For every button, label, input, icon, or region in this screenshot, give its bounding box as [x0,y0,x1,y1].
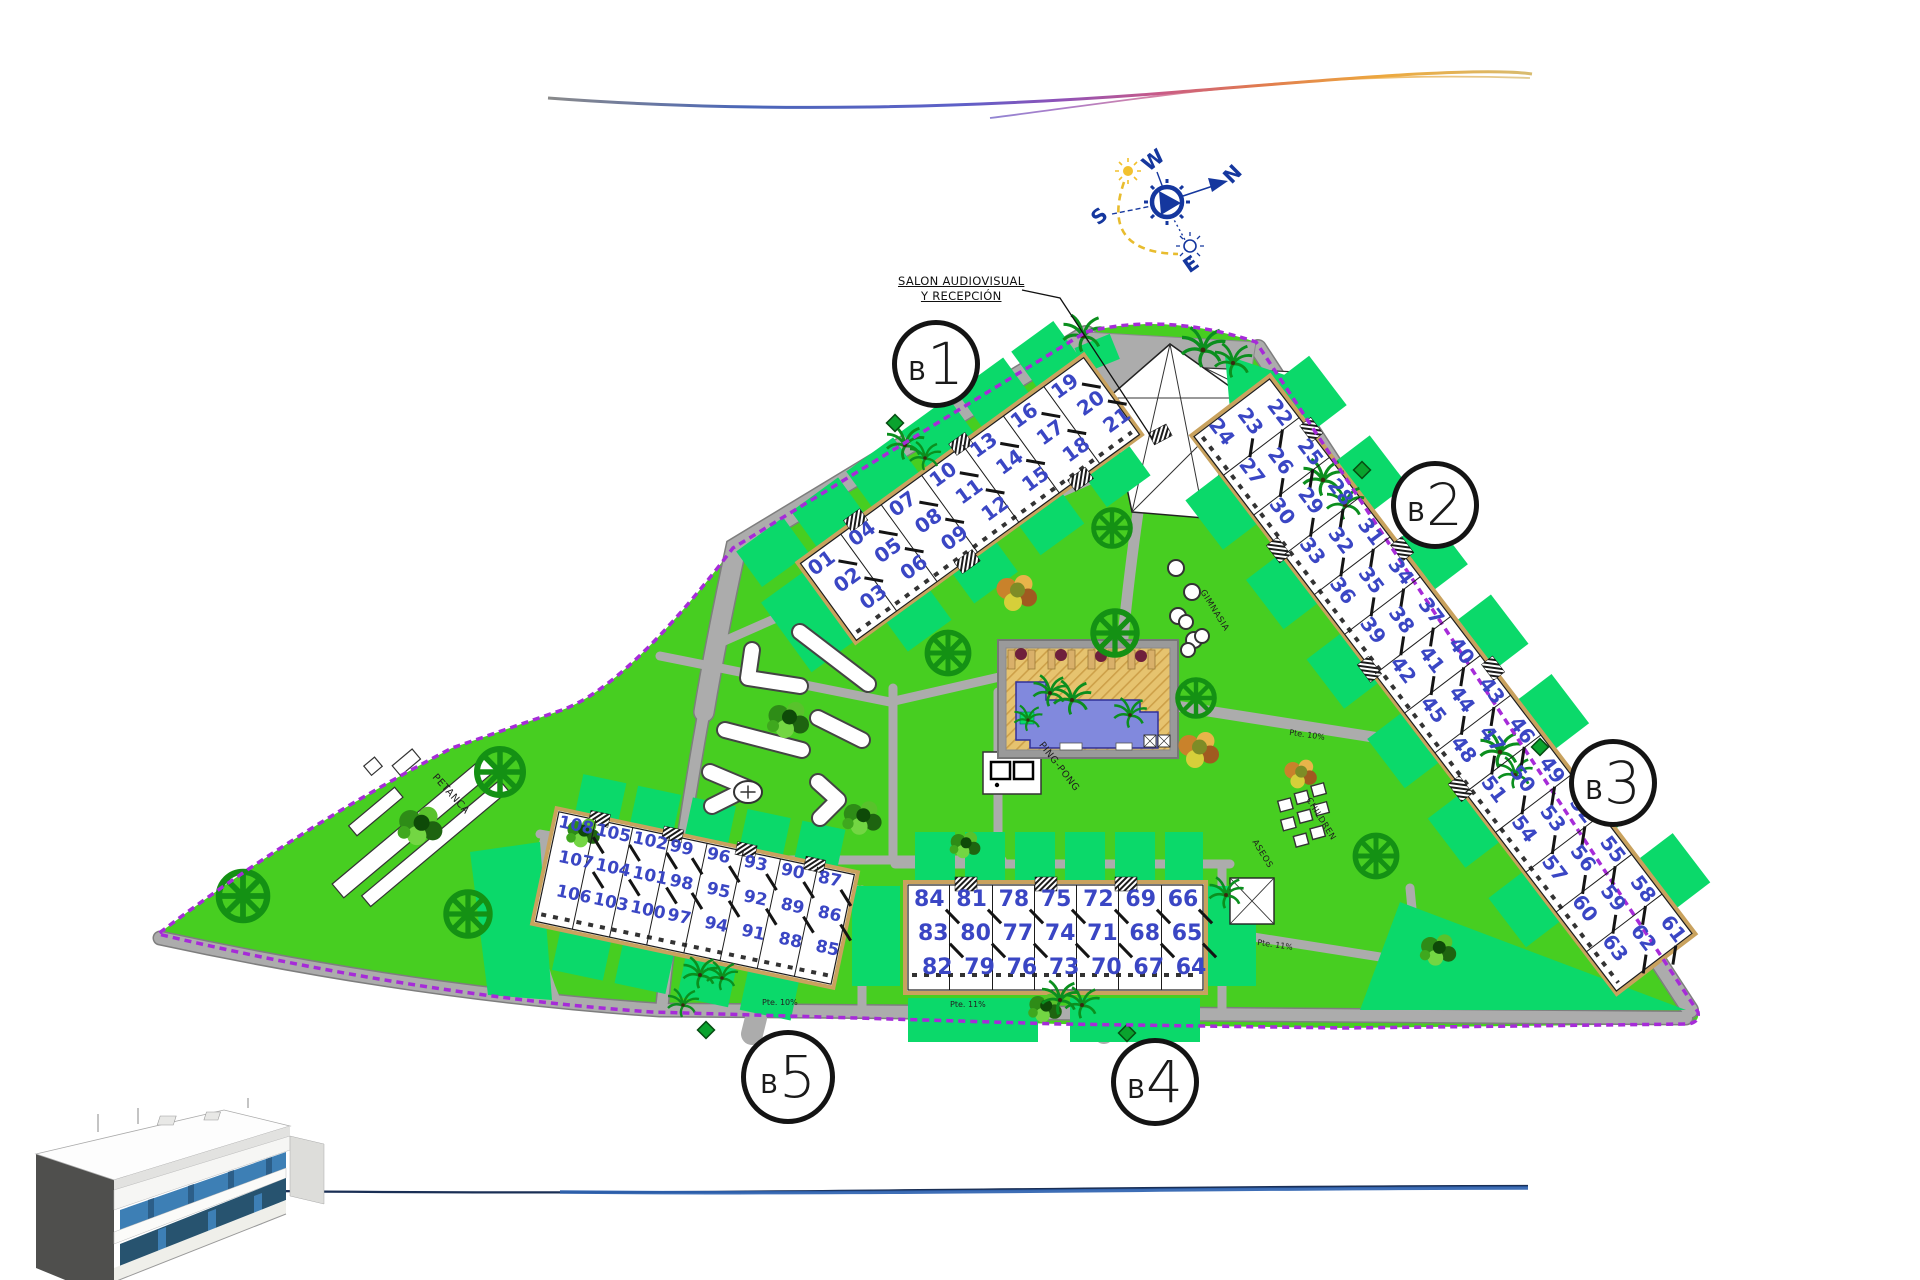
slope-label: Pte. 10% [762,998,798,1007]
block-prefix: B [1127,1075,1145,1105]
block-number: 1 [927,330,964,398]
block-label-b3: B3 [1569,739,1657,827]
top-decorative-line [548,72,1532,118]
slope-label: Pte. 11% [950,1000,986,1009]
sun-icon [1115,158,1141,184]
block-number: 2 [1426,471,1463,539]
compass-rose [1112,158,1228,260]
block-number: 5 [779,1043,816,1111]
block-number: 4 [1146,1048,1183,1116]
block-number: 3 [1604,749,1641,817]
block-prefix: B [1407,498,1425,528]
block-prefix: B [908,357,926,387]
block-label-b4: B4 [1111,1038,1199,1126]
salon-label-line1: SALON AUDIOVISUAL [898,274,1024,289]
block-label-b2: B2 [1391,461,1479,549]
block-label-b5: B5 [741,1030,835,1124]
block-prefix: B [1585,776,1603,806]
site-plan-graphic [0,0,1920,1280]
bottom-decorative-line [268,1186,1528,1193]
salon-audiovisual-label: SALON AUDIOVISUAL Y RECEPCIÓN [898,274,1024,304]
block-prefix: B [760,1070,778,1100]
block-label-b1: B1 [892,320,980,408]
pool-area [998,640,1178,758]
building-b4-footprint [905,877,1206,993]
salon-label-line2: Y RECEPCIÓN [898,289,1024,304]
site-plan: 010203 040506 070809 101112 131415 16171… [0,0,1920,1280]
building-render [36,1098,324,1280]
